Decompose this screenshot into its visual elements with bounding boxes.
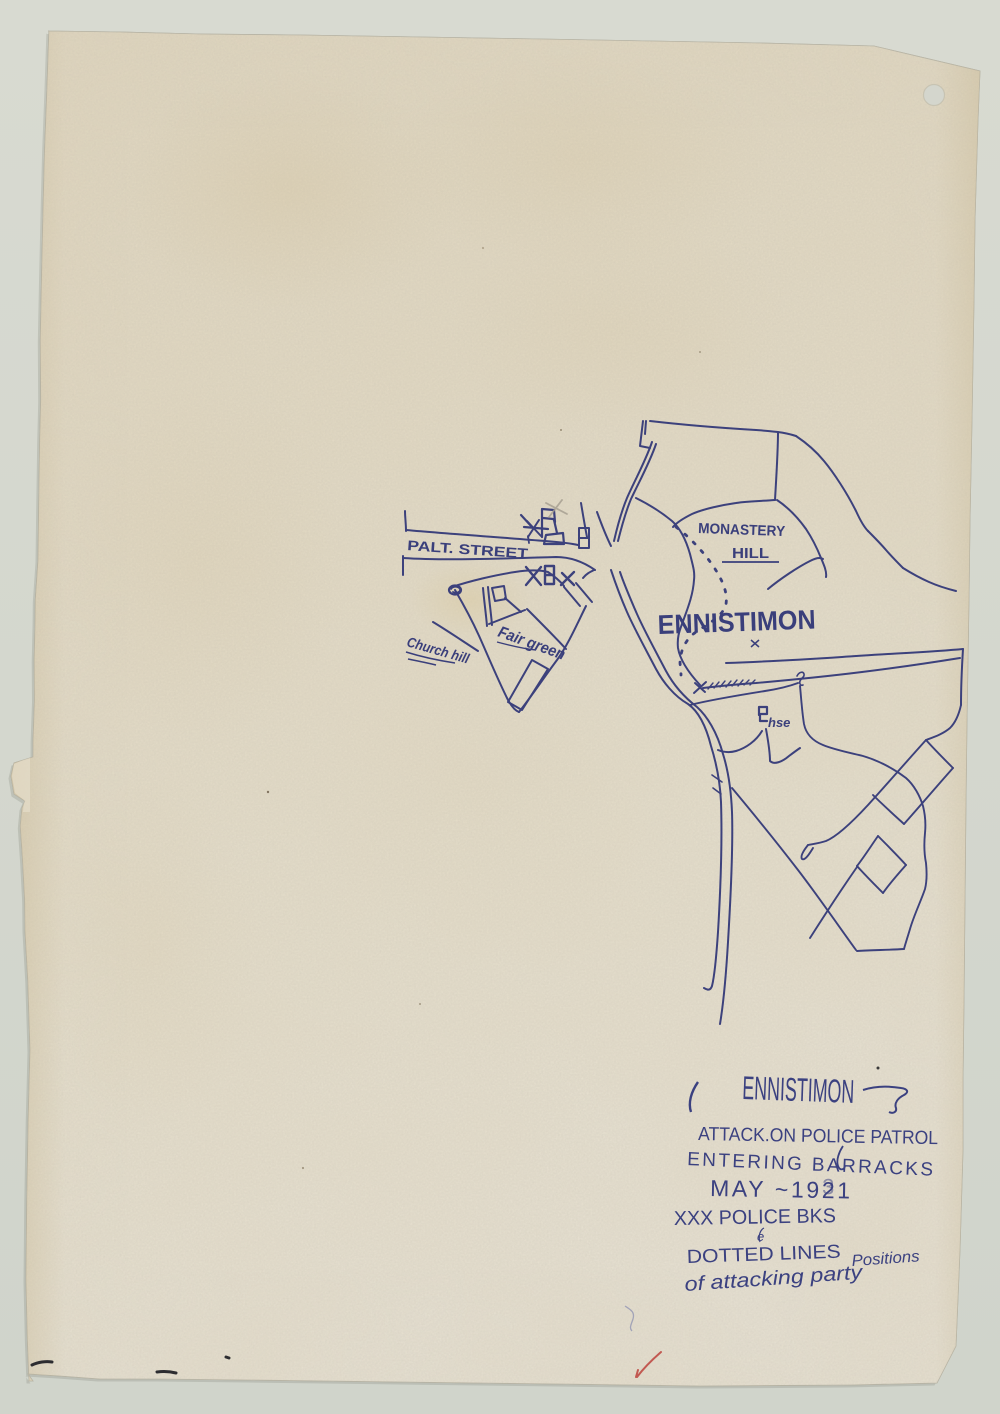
- svg-text:ATTACK.ON POLICE PATROL: ATTACK.ON POLICE PATROL: [698, 1124, 938, 1149]
- svg-text:HILL: HILL: [732, 546, 769, 562]
- svg-text:MONASTERY: MONASTERY: [698, 521, 786, 540]
- svg-text:XXX POLICE BKS: XXX POLICE BKS: [674, 1205, 836, 1230]
- svg-text:ENNISTIMON: ENNISTIMON: [742, 1069, 855, 1110]
- svg-text:ENNISTIMON: ENNISTIMON: [657, 605, 816, 640]
- svg-text:hse: hse: [768, 715, 790, 730]
- svg-text:3: 3: [822, 1174, 835, 1199]
